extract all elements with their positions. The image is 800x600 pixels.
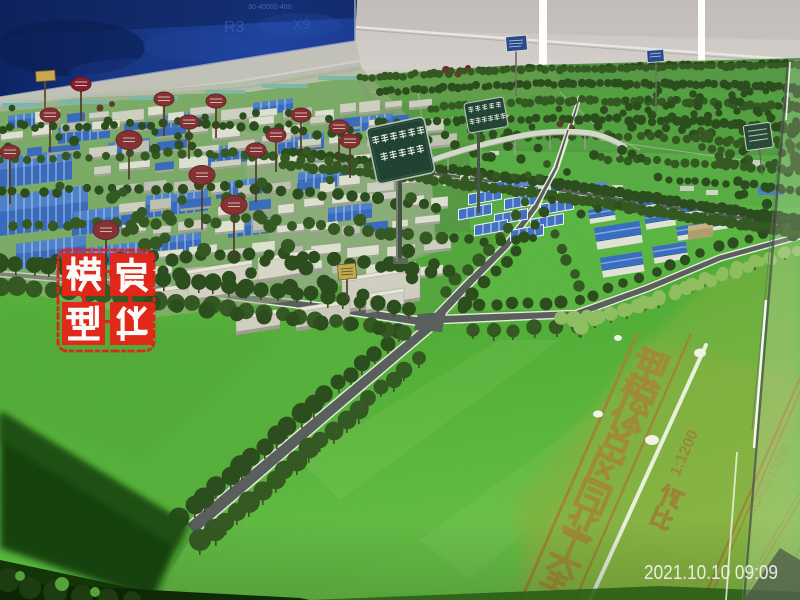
svg-text:30-40000-400: 30-40000-400 — [248, 4, 292, 11]
svg-text:2021.10.10 09:09: 2021.10.10 09:09 — [644, 562, 778, 585]
svg-text:X9: X9 — [293, 16, 310, 32]
svg-text:R3: R3 — [224, 19, 245, 36]
